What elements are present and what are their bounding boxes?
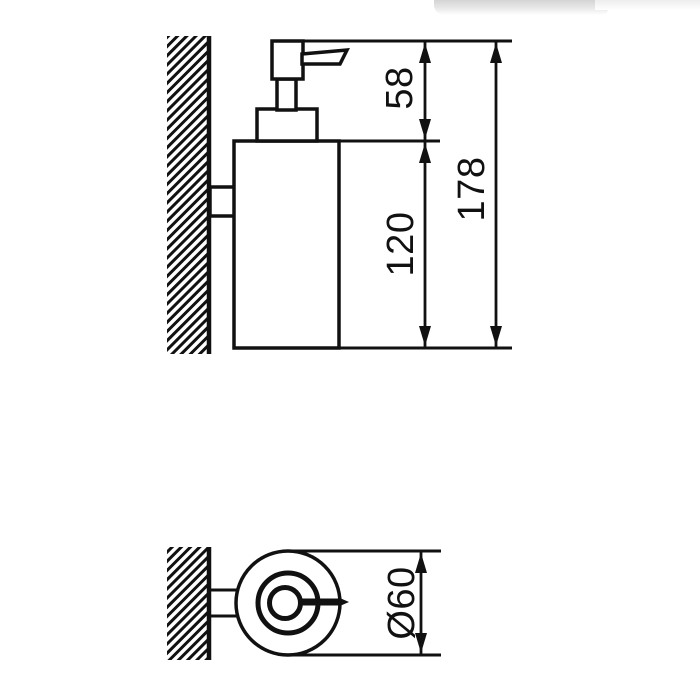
arrowhead-120-top — [419, 143, 431, 163]
pump-stem — [277, 79, 296, 110]
dispenser-body — [234, 141, 339, 348]
technical-drawing: 58 120 178 Ø60 — [0, 0, 700, 700]
pump-head — [272, 41, 303, 79]
arrowhead-120-bottom — [419, 326, 431, 346]
dimension-label-body-height: 120 — [380, 212, 422, 277]
dimension-label-pump-height: 58 — [379, 66, 421, 109]
wall-hatch-top — [167, 547, 210, 660]
wall-hatch-side — [167, 36, 210, 354]
pump-collar — [257, 109, 317, 141]
dimension-label-diameter: Ø60 — [381, 566, 423, 639]
side-view: 58 120 178 — [167, 36, 512, 354]
arrowhead-178-top — [490, 43, 502, 63]
pump-spout-top — [298, 599, 349, 606]
arrowhead-58-top — [419, 43, 431, 63]
dimension-label-total-height: 178 — [451, 157, 493, 222]
arrowhead-58-bottom — [419, 119, 431, 139]
drawing-canvas: 58 120 178 Ø60 — [0, 0, 700, 700]
pump-stem-circle — [270, 588, 301, 619]
pump-spout — [302, 50, 347, 64]
arrowhead-178-bottom — [490, 326, 502, 346]
top-view: Ø60 — [167, 547, 441, 660]
